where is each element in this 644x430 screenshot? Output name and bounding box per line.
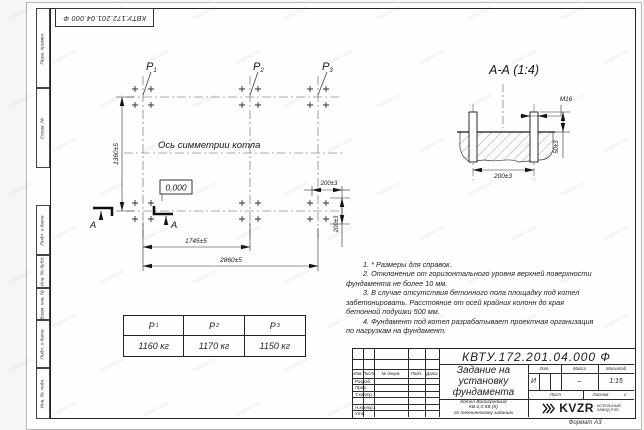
load-point-label-p2: P2 (253, 61, 264, 74)
load-point-leaders (143, 72, 327, 95)
section-cut-marks (93, 206, 173, 223)
plan-dimension-lines (116, 97, 350, 271)
sheets-value: 1 (616, 390, 634, 399)
symmetry-axis-label: Ось симметрии котла (158, 140, 260, 151)
load-table-header: P3 (245, 316, 305, 336)
anchor-bolt-left (469, 112, 477, 162)
rev-col-list: Лист (363, 369, 374, 378)
load-table-value: 1160 кг (124, 336, 184, 356)
spring-icon (541, 402, 556, 415)
title-block: КВТУ.172.201.04.000 Ф Изм. Лист № докум.… (352, 348, 636, 419)
scale-value: 1:15 (598, 373, 634, 390)
row-tkontr: Т.контр. (354, 391, 375, 397)
plan-view: P1 P2 P3 Ось симметрии котла 0,000 (89, 61, 350, 271)
dim-total-span: 2860±5 (219, 257, 242, 264)
notes-block: 1. * Размеры для справок. 2. Отклонение … (346, 260, 596, 336)
section-title: А-А (1:4) (488, 63, 539, 77)
product-name: Котел Водогрейный КВ-2,0 КБ (К) по техни… (439, 399, 528, 417)
section-letter-right: А (170, 220, 177, 231)
row-prov: Пров. (354, 384, 375, 391)
rev-col-podp: Подп. (408, 369, 425, 378)
logo-caption: КОТЕЛЬНЫЙ ЗАВОД РЭП (597, 404, 621, 413)
logo-text: KVZR (559, 401, 594, 415)
dim-bolt-thread: М16 (560, 96, 573, 103)
dim-cluster-h: 200±3 (320, 181, 338, 187)
dim-cluster-v: 200±3 (334, 215, 340, 233)
load-table-header: P1 (124, 316, 184, 336)
company-logo: KVZR КОТЕЛЬНЫЙ ЗАВОД РЭП (528, 399, 634, 417)
titleblock-docnumber: КВТУ.172.201.04.000 Ф (439, 349, 634, 364)
note-1: 1. * Размеры для справок. (346, 260, 596, 269)
rev-col-izm: Изм. (353, 369, 363, 378)
note-2: 2. Отклонение от горизонтального уровня … (346, 269, 596, 288)
load-point-label-p1: P1 (146, 61, 157, 74)
note-4: 4. Фундамент под котел разрабатывает про… (346, 317, 596, 336)
drawing-viewport: kotel-kv.kzkotel-kv.kzkotel-kv.kzkotel-k… (0, 0, 644, 430)
sheets-label: Листов (583, 390, 618, 399)
sheet-label: Лист (528, 390, 583, 399)
load-table: P1 P2 P3 1160 кг 1170 кг 1150 кг (123, 315, 306, 357)
scale-header: Масштаб (598, 364, 634, 373)
load-table-header: P2 (184, 316, 244, 336)
dim-bolt-protrusion: 50±3 (554, 140, 560, 154)
note-3: 3. В случае отсутствия бетонного пола пл… (346, 288, 596, 316)
section-letter-left: А (89, 220, 96, 231)
load-table-value: 1170 кг (184, 336, 244, 356)
rev-col-ndokum: № докум. (374, 369, 408, 378)
lit-value: И (528, 373, 539, 390)
dim-bolt-spacing: 200±3 (493, 173, 512, 180)
section-view: А-А (1:4) М16 50±3 (457, 63, 573, 180)
dim-height: 1360±5 (113, 143, 120, 165)
load-table-value: 1150 кг (245, 336, 305, 356)
format-label: Формат А3 (540, 420, 630, 426)
rev-col-data: Дата (425, 369, 439, 378)
elevation-value: 0,000 (165, 183, 187, 193)
mass-value: – (561, 373, 598, 390)
mass-header: Масса (561, 364, 598, 373)
lit-header: Лит. (528, 364, 561, 373)
anchor-bolt-right (530, 112, 538, 162)
dim-mid-span: 1745±5 (185, 238, 207, 245)
document-title: Задание на установку фундамента (439, 364, 528, 399)
row-utv: Утв. (354, 410, 375, 417)
load-point-label-p3: P3 (322, 61, 333, 74)
